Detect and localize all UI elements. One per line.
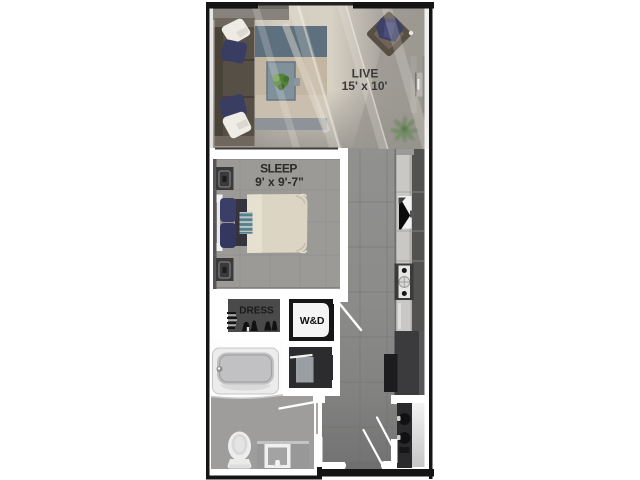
svg-text:DRESS: DRESS [239,306,274,317]
svg-text:9' x 9'-7": 9' x 9'-7" [255,175,304,189]
svg-text:15' x 10': 15' x 10' [342,79,388,93]
svg-text:SLEEP: SLEEP [260,162,297,176]
svg-text:W&D: W&D [300,315,325,327]
